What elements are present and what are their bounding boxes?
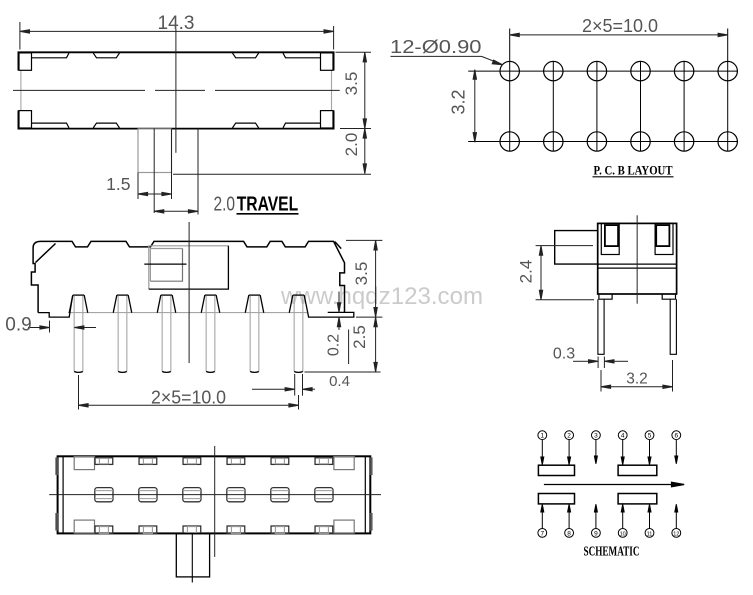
- svg-text:12: 12: [673, 531, 679, 537]
- svg-text:3.5: 3.5: [352, 262, 371, 286]
- svg-text:8: 8: [567, 530, 571, 537]
- svg-text:3.5: 3.5: [342, 72, 361, 96]
- svg-text:4: 4: [621, 433, 625, 440]
- svg-text:3.2: 3.2: [448, 89, 468, 114]
- svg-text:7: 7: [540, 530, 544, 537]
- svg-text:2.4: 2.4: [516, 260, 535, 284]
- svg-text:2.0: 2.0: [214, 193, 236, 216]
- svg-text:0.2: 0.2: [326, 334, 343, 356]
- svg-text:SCHEMATIC: SCHEMATIC: [584, 544, 640, 559]
- svg-text:3: 3: [594, 433, 598, 440]
- svg-text:www.hqdz123.com: www.hqdz123.com: [280, 283, 483, 310]
- svg-text:0.9: 0.9: [5, 315, 31, 336]
- svg-text:2.5: 2.5: [350, 325, 369, 349]
- svg-text:1: 1: [540, 433, 544, 440]
- svg-text:2×5=10.0: 2×5=10.0: [151, 387, 226, 408]
- svg-text:P. C. B LAYOUT: P. C. B LAYOUT: [594, 162, 673, 177]
- svg-text:9: 9: [594, 530, 598, 537]
- svg-text:2×5=10.0: 2×5=10.0: [582, 16, 658, 36]
- svg-text:10: 10: [620, 531, 626, 537]
- svg-text:6: 6: [674, 433, 678, 440]
- svg-text:12-Ø0.90: 12-Ø0.90: [390, 36, 482, 57]
- svg-text:5: 5: [648, 433, 652, 440]
- svg-text:2.0: 2.0: [342, 133, 361, 157]
- svg-text:11: 11: [647, 531, 653, 537]
- svg-text:14.3: 14.3: [158, 13, 195, 34]
- svg-text:TRAVEL: TRAVEL: [237, 194, 299, 216]
- svg-text:2: 2: [567, 433, 571, 440]
- svg-text:1.5: 1.5: [106, 174, 130, 194]
- svg-text:3.2: 3.2: [626, 371, 648, 388]
- svg-text:0.3: 0.3: [553, 346, 575, 363]
- svg-text:0.4: 0.4: [329, 373, 350, 390]
